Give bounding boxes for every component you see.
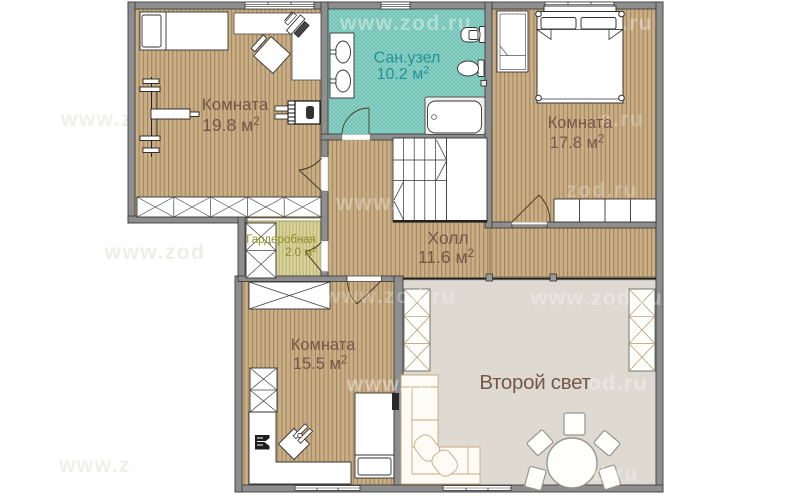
svg-text:Гардеробная: Гардеробная <box>246 234 316 246</box>
svg-text:www.zod.ru: www.zod.ru <box>323 285 456 308</box>
svg-text:zod.ru: zod.ru <box>566 179 638 202</box>
svg-text:Сан.узел: Сан.узел <box>374 50 441 67</box>
svg-text:www.: www. <box>335 190 399 215</box>
svg-text:Холл: Холл <box>427 228 468 248</box>
svg-text:www.z: www.z <box>60 108 133 131</box>
svg-text:19.8 м2: 19.8 м2 <box>202 114 260 135</box>
svg-text:www.zod.ru: www.zod.ru <box>530 287 663 310</box>
svg-text:17.8 м2: 17.8 м2 <box>550 134 604 153</box>
svg-text:www.zod.ru: www.zod.ru <box>339 12 472 35</box>
svg-text:d.ru: d.ru <box>593 463 639 486</box>
svg-text:Комната: Комната <box>548 114 613 132</box>
svg-text:11.6 м2: 11.6 м2 <box>418 246 475 267</box>
svg-text:Комната: Комната <box>202 95 269 114</box>
svg-text:Второй свет: Второй свет <box>479 371 591 394</box>
svg-text:10.2 м2: 10.2 м2 <box>377 65 430 84</box>
svg-text:www.zo: www.zo <box>346 373 433 396</box>
svg-text:od.ru: od.ru <box>588 372 648 395</box>
svg-text:15.5 м2: 15.5 м2 <box>293 355 347 374</box>
svg-text:www.z: www.z <box>58 454 131 477</box>
svg-text:www.zod: www.zod <box>104 241 206 264</box>
svg-text:Комната: Комната <box>291 336 356 354</box>
